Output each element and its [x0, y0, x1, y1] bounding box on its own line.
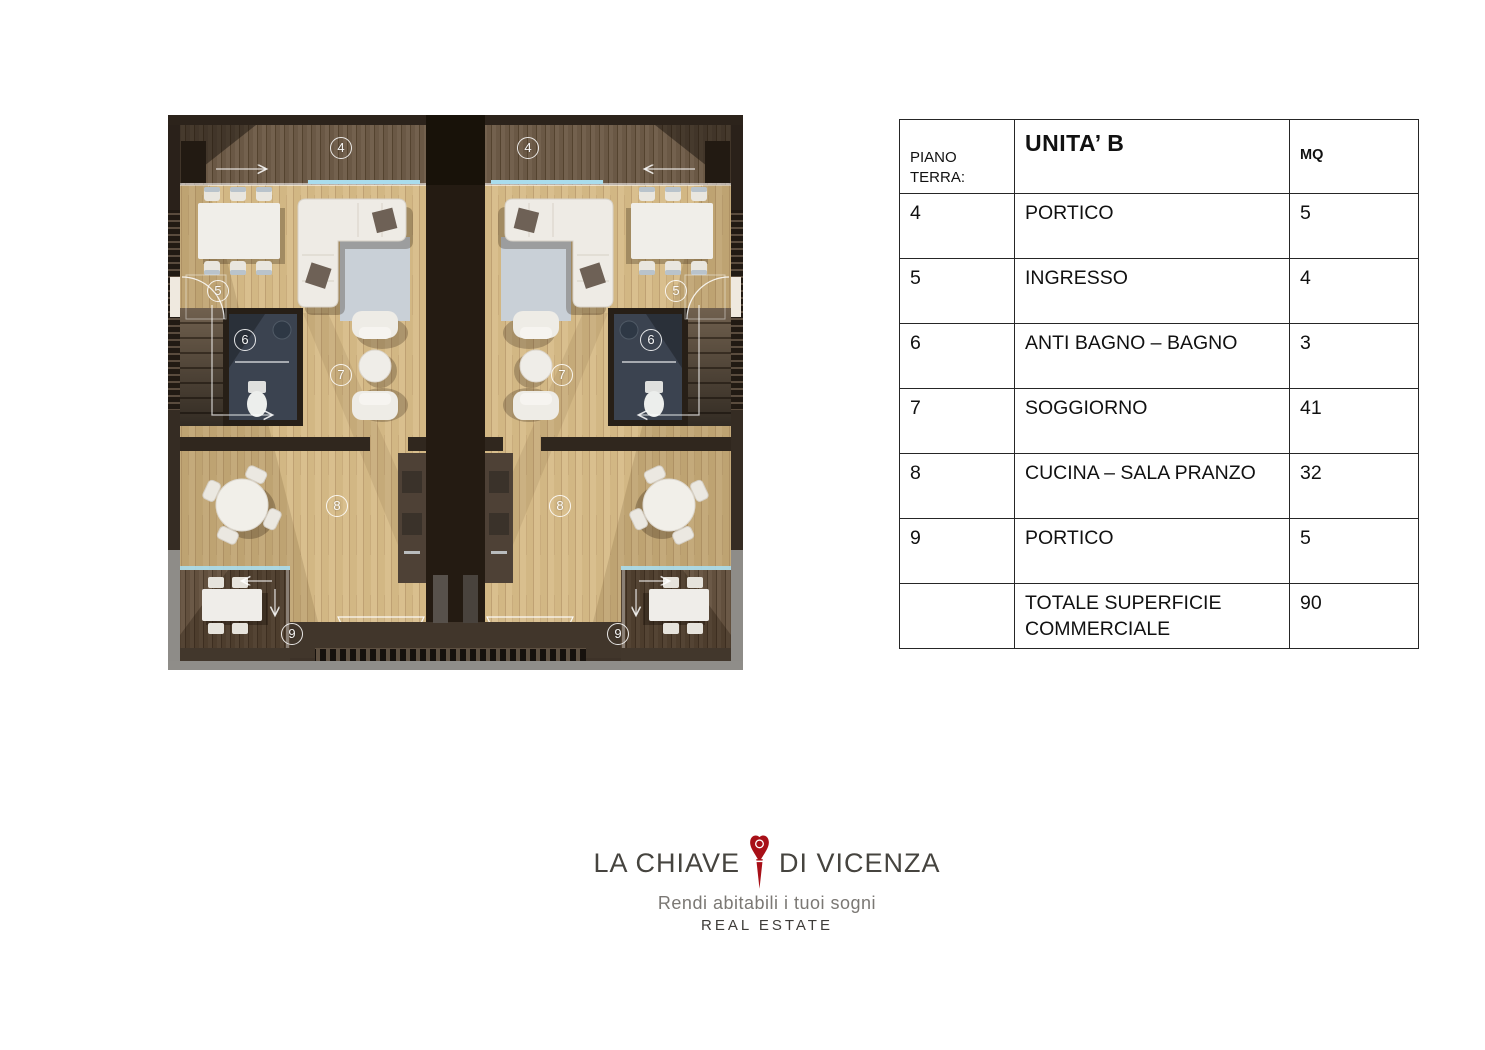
floor-plan: 4 4 5 5 6 6 7 7 8 8 9 9: [168, 115, 743, 670]
room-marker-portico-nord-left: 4: [330, 137, 352, 159]
room-marker-portico-sud-left: 9: [281, 623, 303, 645]
cell-mq: 90: [1290, 583, 1419, 648]
cell-room: SOGGIORNO: [1015, 388, 1290, 453]
cell-mq: 4: [1290, 258, 1419, 323]
room-marker-bagno-right: 6: [640, 329, 662, 351]
cell-num: 7: [900, 388, 1015, 453]
room-marker-bagno-left: 6: [234, 329, 256, 351]
cell-room: PORTICO: [1015, 518, 1290, 583]
cell-room: PORTICO: [1015, 193, 1290, 258]
brand-logo: LA CHIAVE DI VICENZA Rendi abitabili i t…: [606, 836, 928, 934]
floor-plan-rendering: [168, 115, 743, 670]
header-unita-b: UNITA’ B: [1015, 120, 1290, 194]
key-icon: [749, 834, 770, 890]
room-marker-ingresso-right: 5: [665, 280, 687, 302]
header-piano-terra: PIANO TERRA:: [900, 120, 1015, 194]
room-marker-cucina-left: 8: [326, 495, 348, 517]
room-marker-cucina-right: 8: [549, 495, 571, 517]
room-marker-portico-nord-right: 4: [517, 137, 539, 159]
cell-mq: 32: [1290, 453, 1419, 518]
table-row: TOTALE SUPERFICIE COMMERCIALE90: [900, 583, 1419, 648]
room-marker-ingresso-left: 5: [207, 280, 229, 302]
cell-mq: 5: [1290, 518, 1419, 583]
cell-mq: 5: [1290, 193, 1419, 258]
brand-title: LA CHIAVE DI VICENZA: [606, 836, 928, 890]
area-table-body: PIANO TERRA: UNITA’ B MQ 4PORTICO55INGRE…: [900, 120, 1419, 649]
room-marker-portico-sud-right: 9: [607, 623, 629, 645]
brand-title-right: DI VICENZA: [779, 848, 941, 879]
table-row: 9PORTICO5: [900, 518, 1419, 583]
cell-room: ANTI BAGNO – BAGNO: [1015, 323, 1290, 388]
cell-num: 6: [900, 323, 1015, 388]
header-mq: MQ: [1290, 120, 1419, 194]
table-header-row: PIANO TERRA: UNITA’ B MQ: [900, 120, 1419, 194]
room-marker-soggiorno-right: 7: [551, 364, 573, 386]
area-table: PIANO TERRA: UNITA’ B MQ 4PORTICO55INGRE…: [899, 119, 1419, 649]
room-marker-soggiorno-left: 7: [330, 364, 352, 386]
cell-mq: 41: [1290, 388, 1419, 453]
cell-mq: 3: [1290, 323, 1419, 388]
table-row: 8CUCINA – SALA PRANZO32: [900, 453, 1419, 518]
cell-num: 9: [900, 518, 1015, 583]
table-row: 7SOGGIORNO41: [900, 388, 1419, 453]
cell-num: [900, 583, 1015, 648]
cell-room: TOTALE SUPERFICIE COMMERCIALE: [1015, 583, 1290, 648]
brand-subtitle: REAL ESTATE: [606, 917, 928, 934]
cell-num: 4: [900, 193, 1015, 258]
table-row: 5INGRESSO4: [900, 258, 1419, 323]
table-row: 4PORTICO5: [900, 193, 1419, 258]
table-row: 6ANTI BAGNO – BAGNO3: [900, 323, 1419, 388]
cell-num: 8: [900, 453, 1015, 518]
cell-num: 5: [900, 258, 1015, 323]
cell-room: INGRESSO: [1015, 258, 1290, 323]
brand-tagline: Rendi abitabili i tuoi sogni: [606, 893, 928, 914]
cell-room: CUCINA – SALA PRANZO: [1015, 453, 1290, 518]
brand-title-left: LA CHIAVE: [593, 848, 740, 879]
